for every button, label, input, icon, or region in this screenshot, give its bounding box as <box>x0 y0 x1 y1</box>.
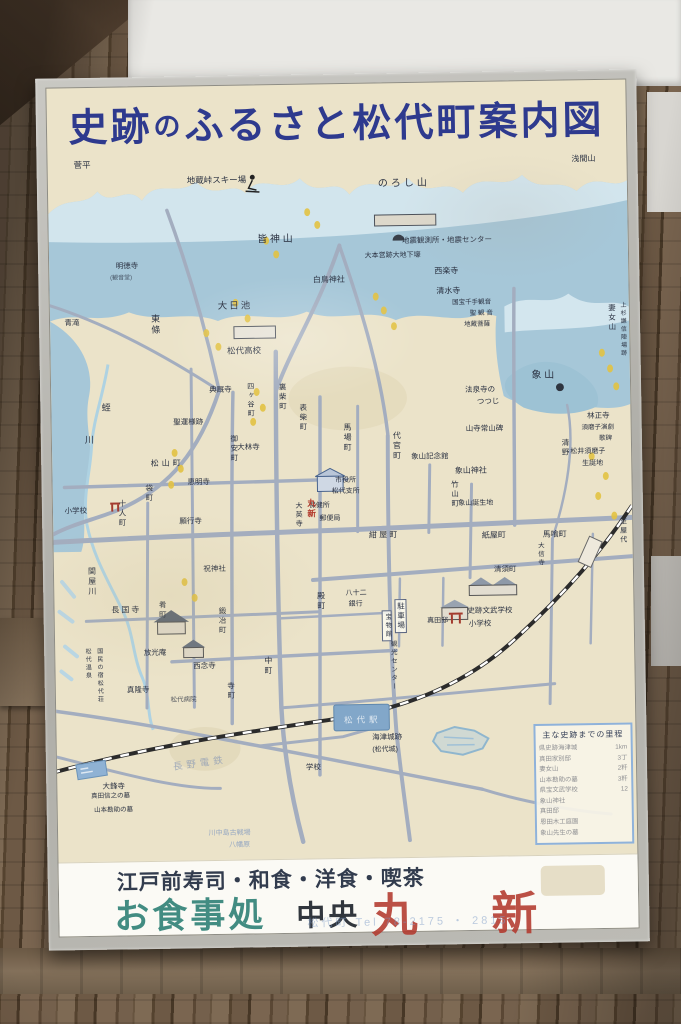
map-label: 表柴町 <box>299 404 307 433</box>
map-label: 大本営跡大地下壕 <box>365 251 421 259</box>
distance-table-title: 主な史跡までの里程 <box>539 729 628 741</box>
map-label: 典厩寺 <box>209 385 232 393</box>
map-label: 浅間山 <box>571 155 595 163</box>
map-label: 中町 <box>264 656 272 676</box>
map-label: 小学校 <box>64 507 87 515</box>
map-label: 清野 <box>561 438 569 457</box>
map-label: 象 山 <box>531 370 554 380</box>
map-label: 寺町 <box>227 681 235 700</box>
map-label: 松代病院 <box>171 697 197 704</box>
map-label: 至屋代 <box>619 518 626 545</box>
map-label: 象山神社 <box>455 466 487 475</box>
title-part: の <box>152 104 185 143</box>
title-part: 史跡 <box>68 96 153 153</box>
map-label: 郵便局 <box>319 515 340 522</box>
map-label: 青滝 <box>64 319 79 327</box>
map-label: 山寺常山碑 <box>466 424 504 432</box>
map-label: 学校 <box>306 763 321 771</box>
map-label: 松井須磨子 <box>570 447 605 455</box>
map-label: 松代支所 <box>332 488 360 495</box>
map-label: 駐車場 <box>395 599 407 634</box>
distance-table-rows: 県史跡海津城1km真田家別邸3丁妻女山2粁山本勘助の墓3粁県宝文武学校12象山神… <box>539 743 629 839</box>
map-label: 菅平 <box>74 161 91 170</box>
map-label: 御安町 <box>230 435 238 464</box>
map-label: 紙屋町 <box>482 532 506 540</box>
map-label: 聖運様跡 <box>173 418 203 426</box>
map-label: 象山誕生地 <box>458 500 493 508</box>
map-label: 上杉謙信陣場跡 <box>619 301 626 357</box>
map-label: 松代高校 <box>227 347 261 356</box>
map-label: 八幡原 <box>229 842 250 849</box>
map-label: 清須町 <box>494 566 517 574</box>
map-label: 長国寺 <box>111 606 141 614</box>
ad-phone-number: 松代町 Tel 78-2175 ・ 2815 <box>307 911 508 930</box>
map-label: 川中島古戦場 <box>209 830 251 838</box>
map-label: 山本勘助の墓 <box>94 808 133 815</box>
map-label: 林正寺 <box>587 412 610 420</box>
map-label: 観光センター <box>389 640 396 691</box>
map-label: 代官町 <box>392 431 400 461</box>
map-label: (松代城) <box>372 746 398 753</box>
distance-table-row: 象山先生の墓 <box>540 827 629 839</box>
map-label: 大林寺 <box>237 444 260 452</box>
map-label: 皆 神 山 <box>257 234 293 245</box>
map-label: 東條 <box>150 314 159 336</box>
map-label: 西楽寺 <box>434 267 458 275</box>
map-label: 妻女山 <box>608 304 616 333</box>
map-label: 鍛冶町 <box>218 607 226 636</box>
map-label: 松山町 <box>151 459 184 468</box>
map-label: つつじ <box>477 397 500 405</box>
map-label: 地震観測所・地震センター <box>402 235 492 244</box>
map-label: 歌碑 <box>599 436 612 443</box>
distance-table: 主な史跡までの里程 県史跡海津城1km真田家別邸3丁妻女山2粁山本勘助の墓3粁県… <box>533 723 633 846</box>
map-label: 地蔵峠スキー場 <box>187 176 247 185</box>
map-label: 明徳寺 <box>116 262 139 270</box>
map-label: 真隆寺 <box>127 686 150 694</box>
map-label: 放光庵 <box>144 648 167 656</box>
map-label: 馬喰町 <box>543 531 567 539</box>
map-label: 袋町 <box>145 484 153 503</box>
map-label: 銀行 <box>349 601 363 608</box>
map-label: 八十二 <box>345 589 366 596</box>
restaurant-ad-band: 江戸前寿司・和食・洋食・喫茶 お食事処 中央 丸 新 松代町 Tel 78-21… <box>59 853 639 936</box>
map-label: 大英寺 <box>295 502 302 529</box>
sign-board: 史跡 の ふるさと松代町案内図 <box>35 69 650 950</box>
map-label: 海津城跡 <box>372 733 402 741</box>
map-label: 殿町 <box>317 591 325 611</box>
map-label: 国民の宿松代荘 <box>96 648 103 704</box>
map-label: 紺 屋 町 <box>369 531 398 539</box>
map-label: 願行寺 <box>179 518 202 526</box>
map-label: 四ヶ谷町 <box>247 382 255 418</box>
map-label: 大信寺 <box>536 542 543 568</box>
map-label: 白鳥神社 <box>313 276 345 285</box>
map-label: 祝神社 <box>203 565 226 573</box>
photo-of-map-sign: { "sign": { "title_parts": ["史跡", "の", "… <box>0 0 681 1024</box>
map-label: 大鋒寺 <box>102 782 125 790</box>
map-label: 法泉寺の <box>465 385 495 393</box>
map-label: 十人町 <box>118 499 126 528</box>
map-label: 大日池 <box>218 301 253 311</box>
map-label: 国宝千手観音 <box>452 299 491 306</box>
map-label: 真田信之の墓 <box>91 793 130 800</box>
map-label: 西念寺 <box>193 662 216 670</box>
sign-board-face: 史跡 の ふるさと松代町案内図 <box>45 78 639 937</box>
map-label: 地蔵菩薩 <box>464 322 490 329</box>
map-label: 聖 観 音 <box>470 310 493 317</box>
map-label: 裏柴町 <box>279 383 287 412</box>
map-label: 真田邸 <box>427 617 448 624</box>
worn-paint-smudge <box>541 865 605 896</box>
map-label: 須磨子演劇 <box>581 425 614 432</box>
map-label: (観音堂) <box>110 275 132 281</box>
map-label: 肴町 <box>159 601 167 620</box>
title-part: ふるさと松代町案内図 <box>184 89 605 152</box>
map-label: 恵明寺 <box>187 478 210 486</box>
map-label: 市役所 <box>335 477 356 484</box>
map-label: 蛭 <box>102 404 111 413</box>
map-label: 史跡文武学校 <box>467 606 512 614</box>
map-label: 川 <box>85 436 94 445</box>
map-label: 象山記念館 <box>411 453 449 461</box>
map-label: 関屋川 <box>87 567 95 597</box>
map-label: 生誕地 <box>582 460 603 467</box>
ad-shop-name-shin: 新 <box>491 877 538 944</box>
map-label: 松代駅 <box>344 715 382 724</box>
map-label: 丸新 <box>307 499 316 520</box>
map-label: 松代温泉 <box>84 648 91 680</box>
ad-restaurant-type: お食事処 <box>114 886 267 939</box>
sign-title: 史跡 の ふるさと松代町案内図 <box>46 80 626 155</box>
map-label: 宝物館 <box>381 610 392 642</box>
map-label: 清水寺 <box>436 287 460 295</box>
map-label: のろし山 <box>378 178 430 189</box>
map-label: 小学校 <box>469 619 492 627</box>
map-label: 馬場町 <box>343 423 351 453</box>
map-area: 主な史跡までの里程 県史跡海津城1km真田家別邸3丁妻女山2粁山本勘助の墓3粁県… <box>47 145 637 862</box>
